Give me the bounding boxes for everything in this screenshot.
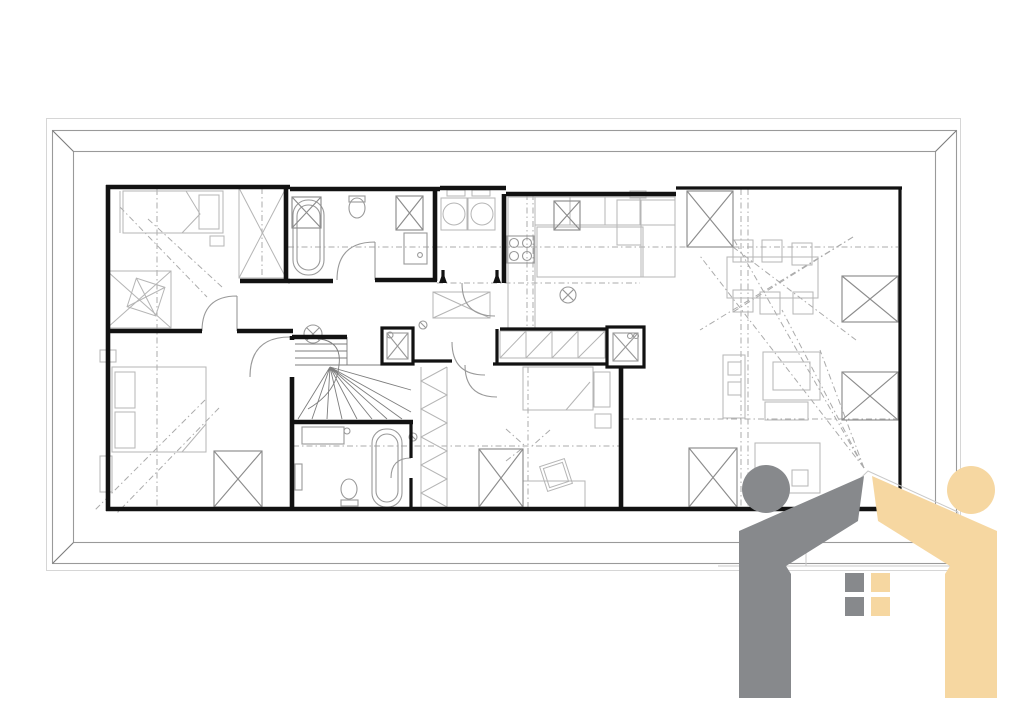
floorplan-page [0, 0, 1024, 724]
logo [718, 465, 997, 698]
chair [793, 292, 813, 314]
room-bathroom-top [293, 196, 427, 275]
tv-sideboard [763, 352, 820, 400]
roof-window-icon [689, 448, 737, 507]
logo-window-panes [845, 573, 890, 616]
roof-window-icon [554, 201, 580, 230]
ceiling-lamp-icon [304, 325, 322, 343]
roof-window-icon [842, 276, 898, 322]
room-bedroom-bottom-left [100, 350, 206, 492]
nightstand [595, 414, 611, 428]
walls [106, 185, 902, 511]
radiator [295, 464, 302, 490]
door-jamb [439, 272, 447, 283]
logo-left-figure-head [742, 465, 790, 513]
room-bedroom-top-left [107, 188, 286, 328]
sink-vanity [302, 427, 344, 444]
desk-chair [540, 459, 573, 492]
single-bed [523, 367, 593, 410]
roof-window-icon [687, 191, 733, 247]
shelf-cabinet [723, 355, 745, 418]
drain [344, 428, 350, 434]
doors [202, 242, 497, 478]
toilet [349, 198, 365, 218]
pillow [594, 372, 610, 407]
sink-vanity [404, 233, 427, 264]
roof-window-icon [479, 449, 523, 507]
floorplan-drawing [0, 0, 1024, 724]
roof-window-icon [396, 196, 423, 230]
fridge-unit [641, 200, 675, 277]
faucet [418, 253, 423, 258]
bench [765, 402, 808, 420]
stair-rail [308, 339, 339, 409]
roof-window-icon [214, 451, 262, 507]
logo-right-figure-head [947, 466, 995, 514]
chair [792, 243, 812, 265]
roof-window-icon [292, 197, 321, 228]
door-icon [465, 365, 497, 397]
roof-windows [214, 191, 898, 507]
desk-chair [127, 278, 165, 316]
tall-cabinet [617, 200, 641, 245]
room-bathroom-bottom [295, 427, 402, 507]
blanket-fold [566, 382, 590, 410]
pillow [115, 372, 135, 408]
pillow [199, 195, 219, 229]
door-icon [202, 296, 237, 331]
door-icon [337, 242, 375, 280]
double-bed [123, 191, 223, 233]
room-laundry [441, 190, 495, 230]
door-icon [250, 337, 290, 377]
room-kitchen [507, 191, 675, 330]
wall-symbol [419, 321, 427, 329]
blanket-fold [182, 424, 206, 452]
door-jamb [493, 272, 501, 283]
island [537, 227, 643, 277]
double-bed [112, 367, 206, 452]
chair [762, 240, 782, 262]
pillow [115, 412, 135, 448]
coffee-table [792, 470, 808, 486]
toilet [341, 479, 357, 499]
door-icon [452, 342, 485, 375]
side-table [210, 236, 224, 246]
blanket-fold [182, 191, 200, 233]
wardrobe-row [500, 331, 605, 358]
elevator-shaft [382, 328, 413, 364]
door-icon [391, 458, 411, 478]
desk [523, 481, 585, 508]
room-bedroom-middle [421, 367, 611, 508]
roof-window-icon [842, 372, 898, 420]
wardrobe-zigzag [421, 367, 447, 507]
duct-shaft [607, 327, 644, 367]
ceiling-lamp-icon [560, 287, 576, 303]
staircase [295, 337, 411, 419]
shelf [447, 190, 465, 196]
